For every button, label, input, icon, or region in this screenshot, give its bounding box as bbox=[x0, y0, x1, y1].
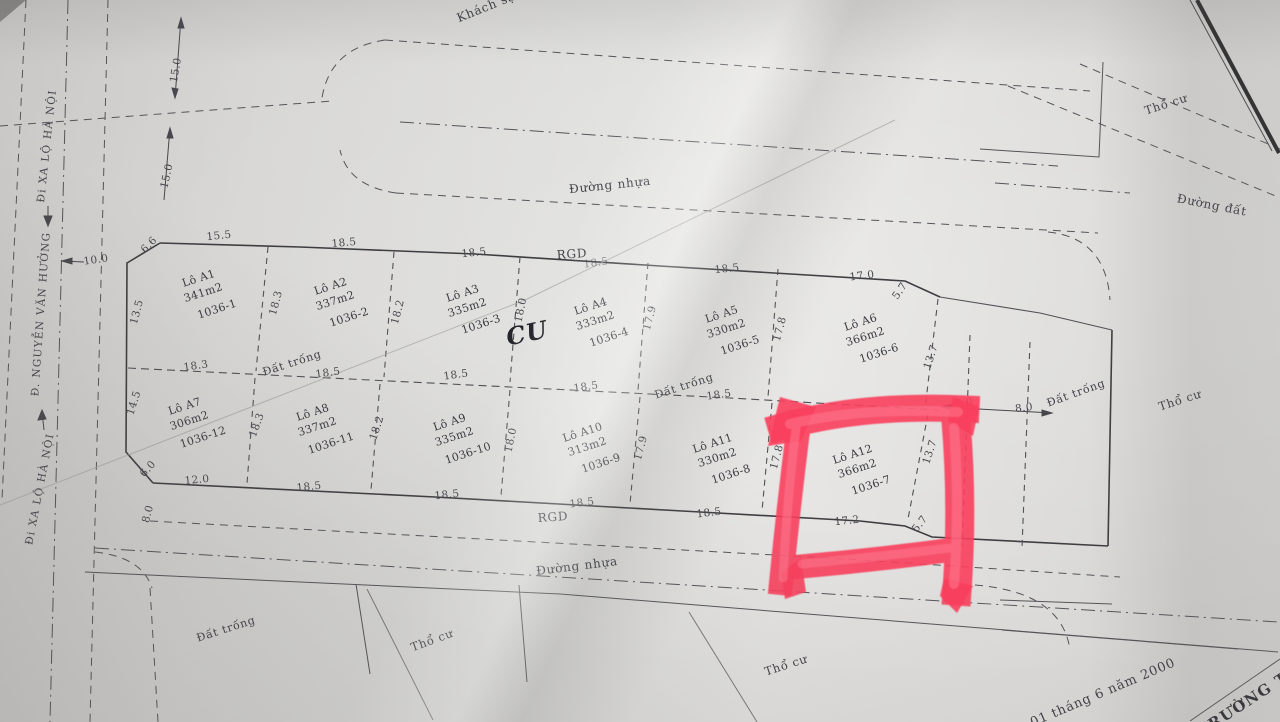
highlight-marker-box bbox=[0, 0, 1280, 722]
cadastral-map-photo: Khách sạĐường nhựaĐường đấtThổ cưRGDĐất … bbox=[0, 0, 1280, 722]
